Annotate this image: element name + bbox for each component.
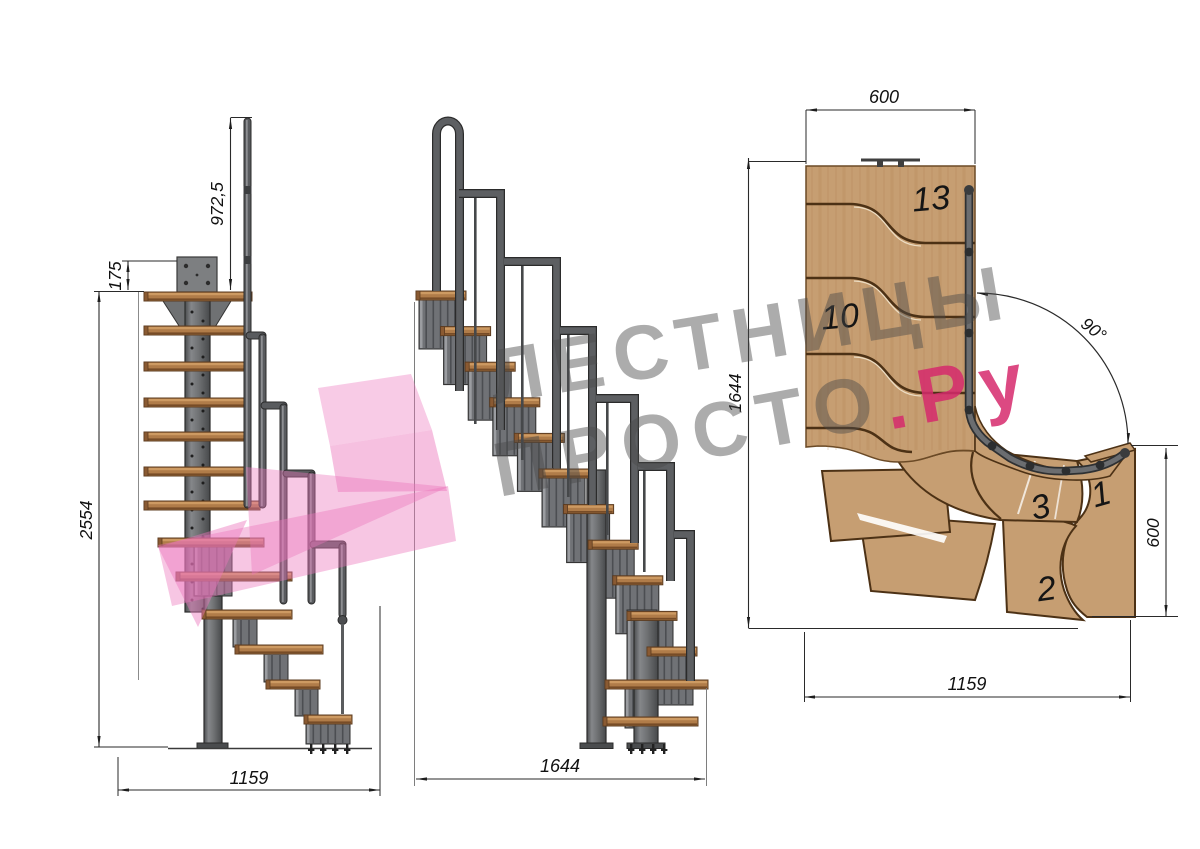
svg-text:13: 13: [911, 178, 952, 219]
svg-text:600: 600: [869, 87, 899, 107]
svg-text:2554: 2554: [76, 500, 96, 540]
svg-text:600: 600: [1143, 518, 1163, 547]
svg-text:972,5: 972,5: [207, 182, 227, 226]
svg-text:175: 175: [105, 261, 125, 290]
svg-text:1159: 1159: [230, 768, 269, 788]
svg-text:1644: 1644: [540, 756, 580, 776]
svg-text:1159: 1159: [948, 674, 987, 694]
